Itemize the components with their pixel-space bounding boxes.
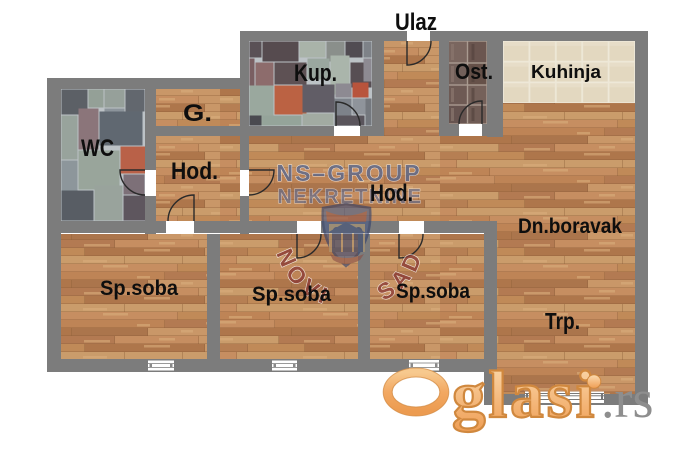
svg-text:Hod.: Hod.	[171, 158, 218, 185]
svg-text:Ost.: Ost.	[455, 59, 493, 84]
svg-text:Sp.soba: Sp.soba	[252, 283, 331, 306]
svg-text:Sp.soba: Sp.soba	[396, 280, 470, 303]
svg-text:Kuhinja: Kuhinja	[531, 61, 602, 82]
svg-text:glasi: glasi	[452, 358, 597, 432]
svg-text:WC: WC	[81, 135, 114, 162]
svg-text:.rs: .rs	[601, 369, 654, 429]
svg-text:Hod.: Hod.	[370, 180, 413, 207]
svg-text:Sp.soba: Sp.soba	[100, 277, 178, 300]
svg-text:Kup.: Kup.	[294, 60, 337, 87]
svg-text:Trp.: Trp.	[545, 308, 580, 334]
svg-text:Dn.boravak: Dn.boravak	[518, 214, 622, 238]
svg-text:Ulaz: Ulaz	[395, 9, 437, 36]
svg-text:G.: G.	[183, 100, 212, 127]
